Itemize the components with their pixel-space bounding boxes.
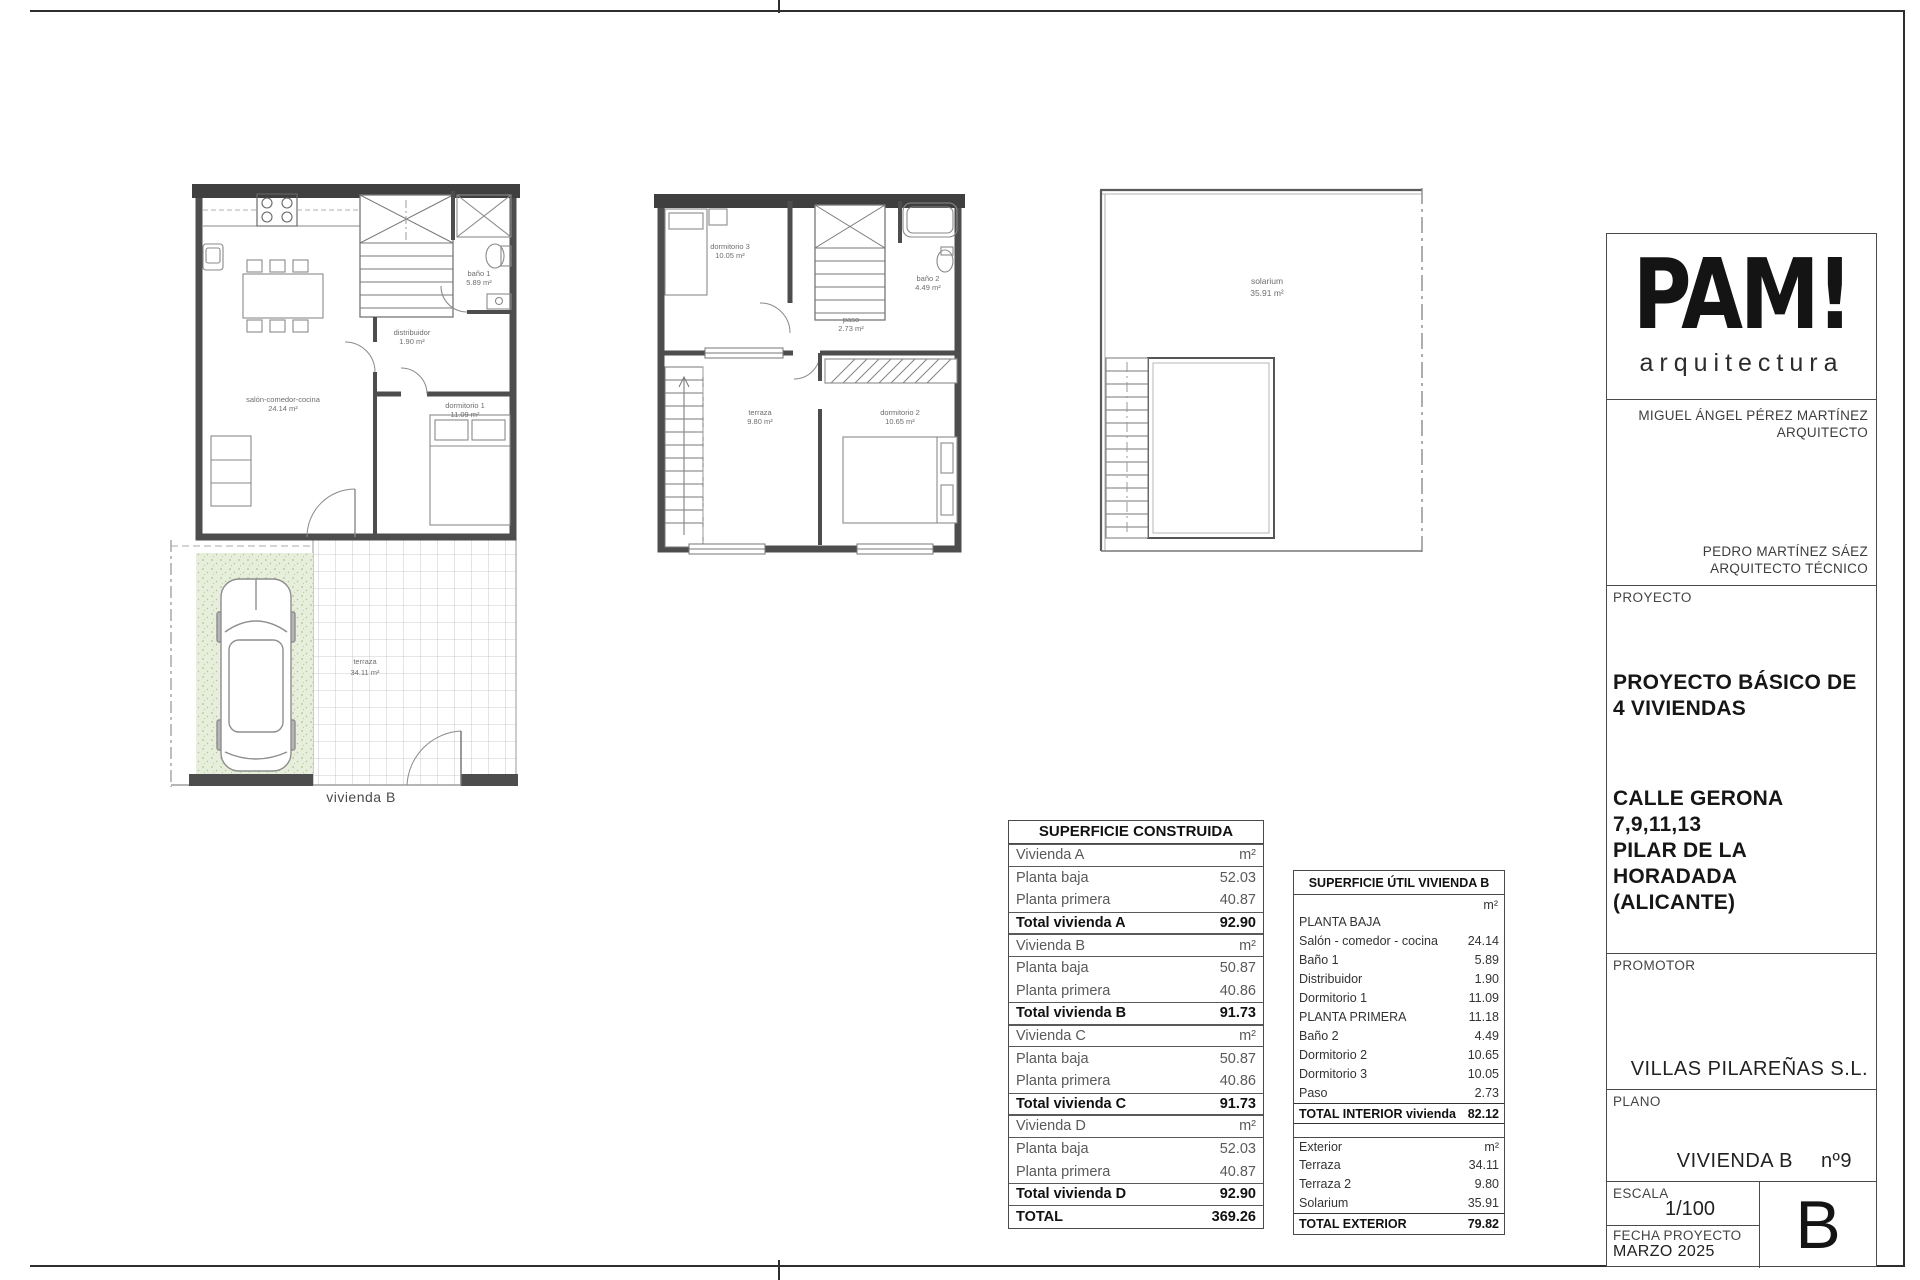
room-label: salón-comedor-cocina xyxy=(246,395,321,404)
room-label: dormitorio 1 xyxy=(445,401,485,410)
promotor-name: VILLAS PILAREÑAS S.L. xyxy=(1631,1058,1868,1081)
room-label: dormitorio 3 xyxy=(710,242,750,251)
frame-right xyxy=(1903,10,1905,1267)
room-label: dormitorio 2 xyxy=(880,408,920,417)
room-area: 2.73 m² xyxy=(838,324,864,333)
escala-cell: ESCALA 1/100 xyxy=(1607,1182,1759,1226)
table-row: Terraza 29.80 xyxy=(1294,1175,1504,1194)
frame-tick-top xyxy=(778,0,780,13)
table-row: Planta baja52.03 xyxy=(1009,1138,1263,1161)
proyecto-box: PROYECTO PROYECTO BÁSICO DE 4 VIVIENDAS … xyxy=(1607,586,1876,954)
table-row: Vivienda Dm² xyxy=(1009,1115,1263,1138)
table-row: Baño 24.49 xyxy=(1294,1027,1504,1046)
room-label: solarium xyxy=(1251,276,1283,286)
table-row: Salón - comedor - cocina24.14 xyxy=(1294,932,1504,951)
sheet-letter-cell: B xyxy=(1760,1182,1876,1268)
table-row: Planta primera40.86 xyxy=(1009,980,1263,1003)
proyecto-label: PROYECTO xyxy=(1613,590,1692,605)
technical-architect-block: PEDRO MARTÍNEZ SÁEZ ARQUITECTO TÉCNICO xyxy=(1703,543,1868,577)
tech-role: ARQUITECTO TÉCNICO xyxy=(1703,560,1868,577)
room-label: distribuidor xyxy=(394,328,431,337)
architect-name-block: MIGUEL ÁNGEL PÉREZ MARTÍNEZ ARQUITECTO xyxy=(1638,407,1868,441)
table-row: Total vivienda A92.90 xyxy=(1009,912,1263,935)
table-row: Total vivienda B91.73 xyxy=(1009,1002,1263,1025)
stairs-upper xyxy=(815,205,885,320)
logo-box: PAM! arquitectura xyxy=(1607,234,1876,400)
title-block: PAM! arquitectura MIGUEL ÁNGEL PÉREZ MAR… xyxy=(1606,233,1877,1267)
table-row: Planta baja52.03 xyxy=(1009,867,1263,890)
room-area: 35.91 m² xyxy=(1250,288,1284,298)
scale-date-row: ESCALA 1/100 FECHA PROYECTO MARZO 2025 B xyxy=(1607,1182,1876,1268)
table-row: Dormitorio 210.65 xyxy=(1294,1046,1504,1065)
table-row: Vivienda Cm² xyxy=(1009,1025,1263,1048)
table-row: Solarium35.91 xyxy=(1294,1194,1504,1213)
plano-box: PLANO VIVIENDA Bnº9 xyxy=(1607,1090,1876,1182)
table-row: Vivienda Am² xyxy=(1009,844,1263,867)
table-row: Total vivienda D92.90 xyxy=(1009,1183,1263,1206)
plan-caption: vivienda B xyxy=(326,789,396,805)
escala-label: ESCALA xyxy=(1613,1186,1669,1201)
room-area: 1.90 m² xyxy=(399,337,425,346)
room-area: 5.89 m² xyxy=(466,278,492,287)
table-row: PLANTA PRIMERA11.18 xyxy=(1294,1008,1504,1027)
room-area: 4.49 m² xyxy=(915,283,941,292)
room-label: paso xyxy=(843,315,859,324)
room-area: 10.65 m² xyxy=(885,417,915,426)
solarium-labels: solarium 35.91 m² xyxy=(1250,276,1284,298)
table-row: Dormitorio 310.05 xyxy=(1294,1065,1504,1084)
table-row: Paso2.73 xyxy=(1294,1084,1504,1103)
room-area: 9.80 m² xyxy=(747,417,773,426)
promotor-box: PROMOTOR VILLAS PILAREÑAS S.L. xyxy=(1607,954,1876,1090)
stairs xyxy=(360,195,453,317)
plano-name: VIVIENDA Bnº9 xyxy=(1677,1150,1852,1173)
fecha-cell: FECHA PROYECTO MARZO 2025 xyxy=(1607,1226,1759,1268)
pam-logo: PAM! xyxy=(1633,246,1850,344)
room-label: terraza xyxy=(353,657,377,666)
architects-box: MIGUEL ÁNGEL PÉREZ MARTÍNEZ ARQUITECTO P… xyxy=(1607,400,1876,586)
table-row: Baño 15.89 xyxy=(1294,951,1504,970)
table-row: Total vivienda C91.73 xyxy=(1009,1093,1263,1116)
table-row: Planta primera40.86 xyxy=(1009,1070,1263,1093)
plano-label: PLANO xyxy=(1613,1094,1661,1109)
stairs-lower xyxy=(665,367,703,547)
floor-plan-solarium: solarium 35.91 m² xyxy=(1090,180,1435,565)
table-row: Terraza34.11 xyxy=(1294,1156,1504,1175)
promotor-label: PROMOTOR xyxy=(1613,958,1695,973)
solarium-stairwell xyxy=(1106,358,1274,538)
proyecto-address: CALLE GERONA 7,9,11,13 PILAR DE LA HORAD… xyxy=(1613,786,1876,916)
architect-role: ARQUITECTO xyxy=(1638,424,1868,441)
scale-date-column: ESCALA 1/100 FECHA PROYECTO MARZO 2025 xyxy=(1607,1182,1760,1268)
car xyxy=(217,579,295,771)
table-row: Planta primera40.87 xyxy=(1009,1160,1263,1183)
table-title: SUPERFICIE ÚTIL VIVIENDA B xyxy=(1294,871,1504,895)
fecha-value: MARZO 2025 xyxy=(1613,1243,1759,1261)
table-row: PLANTA BAJA xyxy=(1294,913,1504,932)
room-label: terraza xyxy=(748,408,772,417)
table-row-total: TOTAL EXTERIOR79.82 xyxy=(1294,1213,1504,1234)
sheet-letter: B xyxy=(1795,1186,1840,1264)
room-area: 10.05 m² xyxy=(715,251,745,260)
drawing-sheet: salón-comedor-cocina 24.14 m² distribuid… xyxy=(0,0,1920,1280)
table-row: Planta baja50.87 xyxy=(1009,957,1263,980)
dormitorio1-furniture xyxy=(430,415,510,525)
table-row-total: TOTAL369.26 xyxy=(1009,1206,1263,1229)
fecha-label: FECHA PROYECTO xyxy=(1613,1228,1759,1243)
logo-subtitle: arquitectura xyxy=(1639,349,1843,378)
frame-tick-bottom xyxy=(778,1260,780,1280)
room-area: 11.09 m² xyxy=(450,410,480,419)
table-row: Vivienda Bm² xyxy=(1009,934,1263,957)
room-label: baño 2 xyxy=(917,274,940,283)
table-row: Exteriorm² xyxy=(1294,1137,1504,1156)
architect-name: MIGUEL ÁNGEL PÉREZ MARTÍNEZ xyxy=(1638,407,1868,424)
superficie-util-table: SUPERFICIE ÚTIL VIVIENDA B m² PLANTA BAJ… xyxy=(1293,870,1505,1235)
room-area: 24.14 m² xyxy=(268,404,298,413)
room-area: 34.11 m² xyxy=(350,668,380,677)
table-row: Dormitorio 111.09 xyxy=(1294,989,1504,1008)
superficie-construida-table: SUPERFICIE CONSTRUIDA Vivienda Am² Plant… xyxy=(1008,820,1264,1229)
table-row: Planta baja50.87 xyxy=(1009,1047,1263,1070)
floor-plan-first: dormitorio 3 10.05 m² baño 2 4.49 m² pas… xyxy=(645,185,980,575)
tech-name: PEDRO MARTÍNEZ SÁEZ xyxy=(1703,543,1868,560)
proyecto-title: PROYECTO BÁSICO DE 4 VIVIENDAS xyxy=(1613,670,1857,722)
frame-top xyxy=(30,10,1905,12)
table-row: Planta primera40.87 xyxy=(1009,889,1263,912)
table-title: SUPERFICIE CONSTRUIDA xyxy=(1009,821,1263,844)
floor-plan-ground: salón-comedor-cocina 24.14 m² distribuid… xyxy=(165,180,530,820)
escala-value: 1/100 xyxy=(1665,1198,1715,1221)
table-gap xyxy=(1294,1124,1504,1137)
room-label: baño 1 xyxy=(468,269,491,278)
table-row-total: TOTAL INTERIOR vivienda82.12 xyxy=(1294,1103,1504,1124)
unit-row: m² xyxy=(1294,895,1504,913)
table-row: Distribuidor1.90 xyxy=(1294,970,1504,989)
